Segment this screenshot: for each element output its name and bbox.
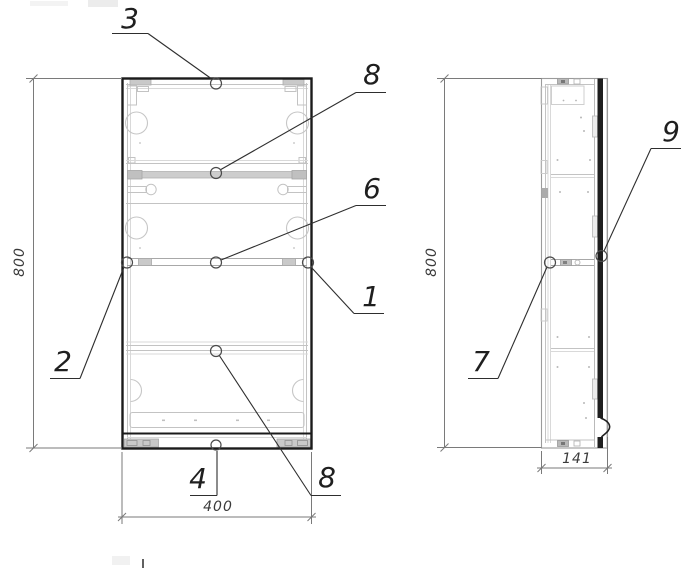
callout-1: 1 — [303, 257, 385, 314]
callout-2-label: 2 — [54, 345, 72, 378]
lower-shelf — [126, 342, 308, 354]
crop-artifacts — [30, 0, 143, 568]
callout-3: 3 — [112, 2, 222, 89]
upper-shelf — [126, 158, 308, 204]
callout-2: 2 — [50, 257, 133, 379]
callout-8-bottom-label: 8 — [318, 461, 336, 494]
callout-8-top-label: 8 — [363, 58, 381, 91]
callout-9: 9 — [596, 115, 681, 262]
bottom-rail — [130, 413, 304, 428]
callout-4-label: 4 — [189, 462, 207, 495]
middle-connector-row — [127, 259, 307, 266]
dim-side-height: 800 — [424, 75, 542, 452]
top-right-bracket — [283, 80, 307, 106]
callout-1-label: 1 — [362, 280, 380, 313]
callout-9-label: 9 — [662, 115, 680, 148]
callout-3-label: 3 — [121, 2, 139, 35]
top-left-bracket — [128, 80, 152, 106]
callout-8-bottom: 8 — [211, 346, 342, 496]
front-view-interior-details — [122, 80, 312, 448]
side-depth-value: 141 — [562, 451, 592, 467]
side-view — [541, 79, 610, 449]
wall-dots — [139, 142, 295, 249]
front-width-value: 400 — [203, 499, 233, 515]
side-height-value: 800 — [424, 247, 440, 277]
dim-front-height: 800 — [12, 75, 122, 453]
drawing-canvas: 800 400 800 141 3 8 — [0, 0, 695, 570]
cabinet-technical-drawing: 800 400 800 141 3 8 — [0, 0, 695, 570]
front-height-value: 800 — [12, 247, 28, 277]
callout-6-label: 6 — [363, 172, 381, 205]
callout-7-label: 7 — [472, 345, 490, 378]
